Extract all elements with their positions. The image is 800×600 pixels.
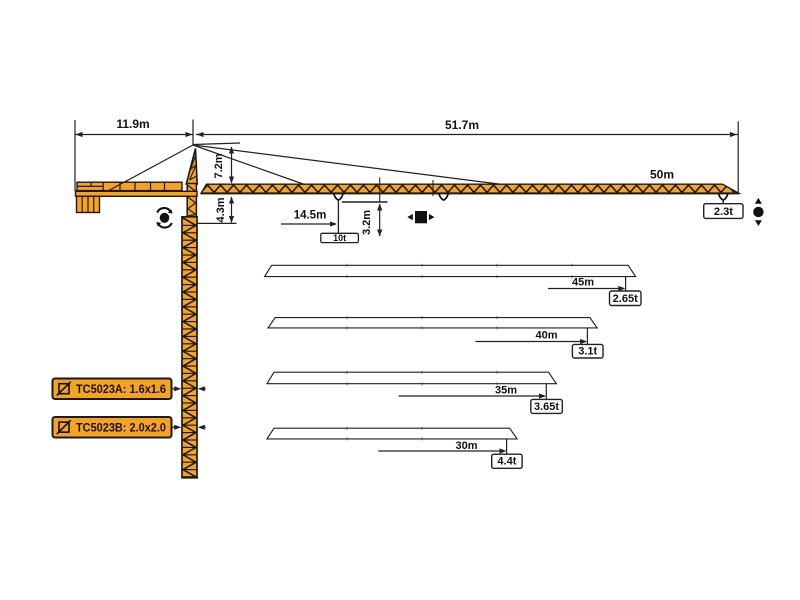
svg-text:4.3m: 4.3m — [215, 197, 227, 222]
svg-text:4.4t: 4.4t — [497, 456, 516, 468]
svg-text:50m: 50m — [650, 168, 674, 182]
svg-text:2.3t: 2.3t — [714, 206, 733, 218]
svg-text:35m: 35m — [495, 385, 517, 397]
svg-text:14.5m: 14.5m — [294, 210, 327, 222]
svg-text:11.9m: 11.9m — [116, 117, 149, 131]
svg-text:3.2m: 3.2m — [361, 210, 373, 235]
svg-text:3.1t: 3.1t — [578, 345, 597, 357]
svg-text:40m: 40m — [535, 330, 557, 342]
svg-text:30m: 30m — [455, 440, 477, 452]
svg-text:2.65t: 2.65t — [613, 293, 638, 305]
svg-text:3.65t: 3.65t — [534, 401, 559, 413]
svg-text:TC5023A: 1.6x1.6: TC5023A: 1.6x1.6 — [76, 384, 166, 396]
svg-text:7.2m: 7.2m — [213, 153, 225, 178]
svg-text:TC5023B: 2.0x2.0: TC5023B: 2.0x2.0 — [76, 422, 166, 434]
svg-text:45m: 45m — [572, 277, 594, 289]
svg-text:10t: 10t — [333, 233, 346, 243]
svg-text:51.7m: 51.7m — [445, 118, 479, 132]
